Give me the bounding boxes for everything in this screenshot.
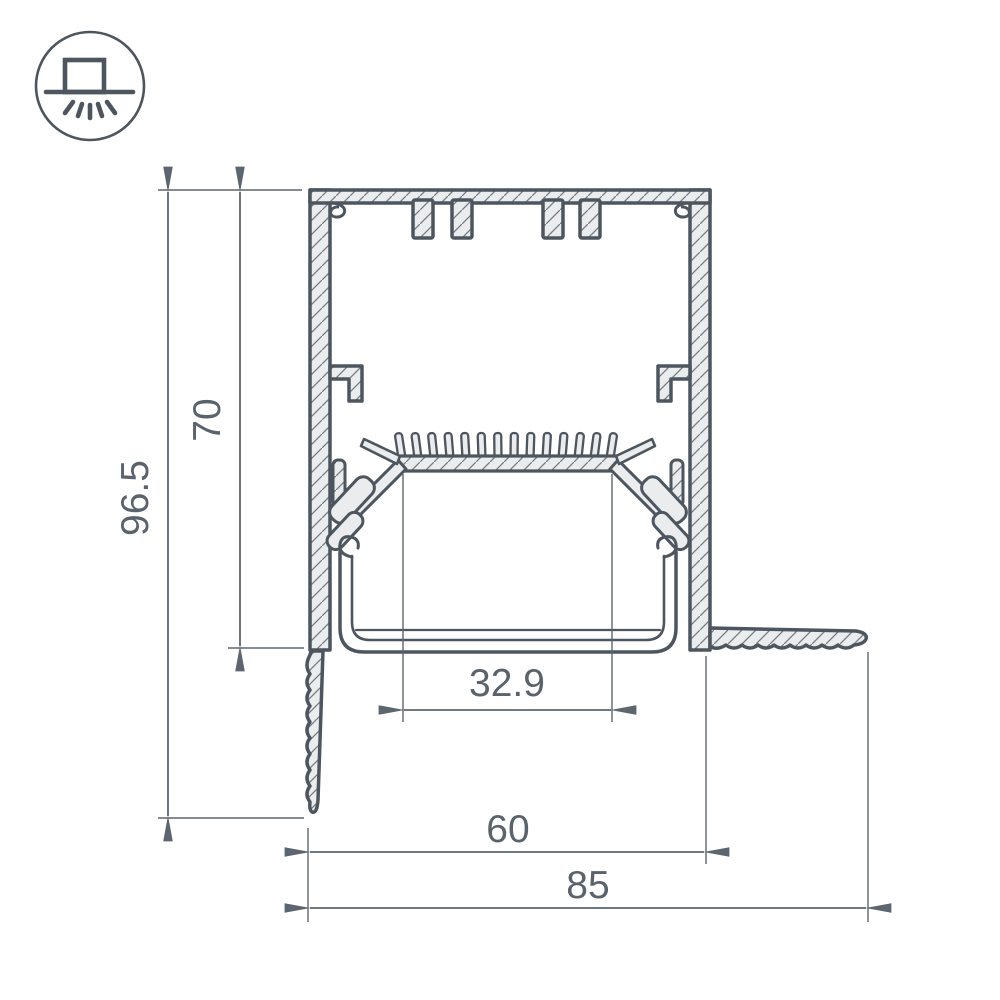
right-wall [690, 190, 710, 650]
label-overall-height: 96.5 [114, 460, 157, 536]
right-plaster-flange [710, 628, 866, 648]
corner-curls [331, 203, 690, 217]
label-body-width: 60 [486, 808, 529, 851]
left-wall-hook [330, 366, 362, 401]
surface-mounted-light-icon [46, 60, 133, 118]
drawing-canvas: 96.5 70 32.9 60 85 [0, 0, 1000, 1000]
heatsink [324, 433, 692, 553]
label-body-height: 70 [186, 398, 229, 441]
profile-body [307, 190, 866, 812]
screw-channel-tabs [413, 200, 600, 238]
label-led-window-width: 32.9 [469, 662, 545, 705]
diffuser-cover [340, 537, 677, 652]
heatsink-plate [398, 456, 618, 471]
top-wall [310, 190, 710, 203]
right-wall-hook [658, 366, 690, 401]
badge-circle [36, 32, 144, 140]
left-plaster-flange [307, 651, 323, 812]
profile-cross-section-drawing: 96.5 70 32.9 60 85 [0, 0, 1000, 1000]
mount-type-badge [36, 32, 144, 140]
dimension-lines [168, 192, 866, 908]
diffuser-outer [340, 552, 676, 652]
left-upper-arm [361, 439, 400, 464]
right-upper-arm [616, 439, 655, 464]
label-overall-width: 85 [566, 864, 609, 907]
left-wall [310, 190, 330, 650]
